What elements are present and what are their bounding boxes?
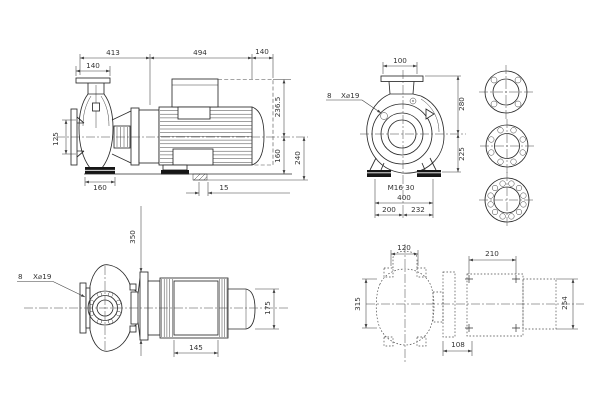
casing-foot-pad: [85, 167, 115, 174]
motor-end-shield: [139, 110, 159, 163]
foundation-plan-view: 120 210 315 254 108: [353, 243, 584, 362]
dim-400: 400: [397, 193, 411, 202]
flange-view-12-hole: [479, 172, 535, 228]
dim-240: 240: [293, 151, 302, 165]
dim-175: 175: [263, 301, 272, 315]
side-elevation-view: 413 494 140 140 125 160 236.5 160 240 15: [51, 47, 308, 196]
bearing-lantern: [112, 108, 139, 165]
foundation-view-dimensions: 120 210 315 254 108: [353, 243, 578, 356]
pump-dimensional-drawing: 413 494 140 140 125 160 236.5 160 240 15: [0, 0, 600, 400]
dim-140-motor: 140: [255, 47, 269, 56]
lantern-bracket-dotted: [443, 272, 455, 337]
dim-160-foot: 160: [93, 183, 107, 192]
front-view: 100 280 225 M16 30 400 200 232 8 X⌀19: [326, 56, 466, 218]
motor-body: [139, 79, 273, 165]
motor-flange-plate-plan: [140, 272, 148, 340]
pump-casing: [79, 85, 113, 168]
foundation-bolt-marks: [465, 275, 520, 332]
flange-view-8-hole: [480, 119, 534, 173]
motor-rear-cap-plan: [228, 289, 255, 329]
dim-145: 145: [189, 343, 203, 352]
dim-210: 210: [485, 249, 499, 258]
bolt-holes-callout-plan: 8 X⌀19: [17, 272, 85, 297]
dim-125: 125: [51, 132, 60, 146]
dim-108: 108: [451, 340, 465, 349]
discharge-flange: [76, 78, 110, 94]
holes-spec: X⌀19: [33, 272, 52, 281]
holes-count: 8: [18, 272, 23, 281]
foundation-shim: [193, 174, 207, 180]
dim-100: 100: [393, 56, 407, 65]
dim-315: 315: [353, 297, 362, 311]
bolt-note: M16 30: [388, 183, 415, 192]
dim-140-flange: 140: [86, 61, 100, 70]
dim-350: 350: [128, 230, 137, 244]
discharge-flange-front: [381, 76, 423, 82]
motor-foot-pad: [161, 165, 189, 175]
flange-view-4-hole: [479, 65, 533, 119]
holes-count: 8: [327, 91, 332, 100]
dim-225: 225: [457, 147, 466, 161]
dim-232: 232: [411, 205, 425, 214]
flange-drilling-views: [479, 65, 535, 228]
dim-254: 254: [560, 296, 569, 310]
dim-280: 280: [457, 97, 466, 111]
shaft-housing-dotted: [433, 292, 443, 322]
dim-413: 413: [106, 48, 120, 57]
dim-200: 200: [382, 205, 396, 214]
dim-120: 120: [397, 243, 411, 252]
motor-end-cap: [252, 107, 264, 165]
technical-drawing-page: 413 494 140 140 125 160 236.5 160 240 15: [0, 0, 600, 400]
dim-236-5: 236.5: [273, 97, 282, 118]
dim-160-axis: 160: [273, 149, 282, 163]
plan-view: 350 145 175 8 X⌀19: [17, 206, 290, 357]
dim-15: 15: [219, 183, 228, 192]
motor-terminal-box: [172, 79, 218, 107]
holes-spec: X⌀19: [341, 91, 360, 100]
motor-outline-dotted: [467, 274, 523, 336]
dim-494: 494: [193, 48, 207, 57]
